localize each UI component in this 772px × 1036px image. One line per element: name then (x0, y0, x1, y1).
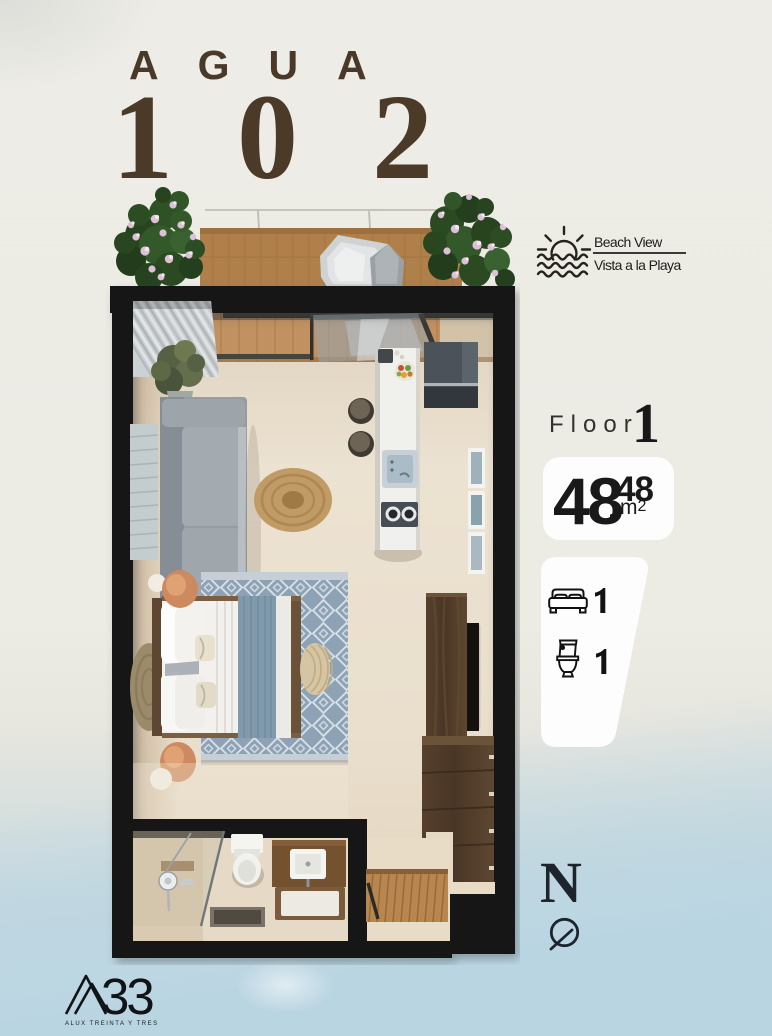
svg-text:33: 33 (101, 968, 153, 1025)
svg-text:ALUX TREINTA Y TRES: ALUX TREINTA Y TRES (65, 1021, 159, 1027)
